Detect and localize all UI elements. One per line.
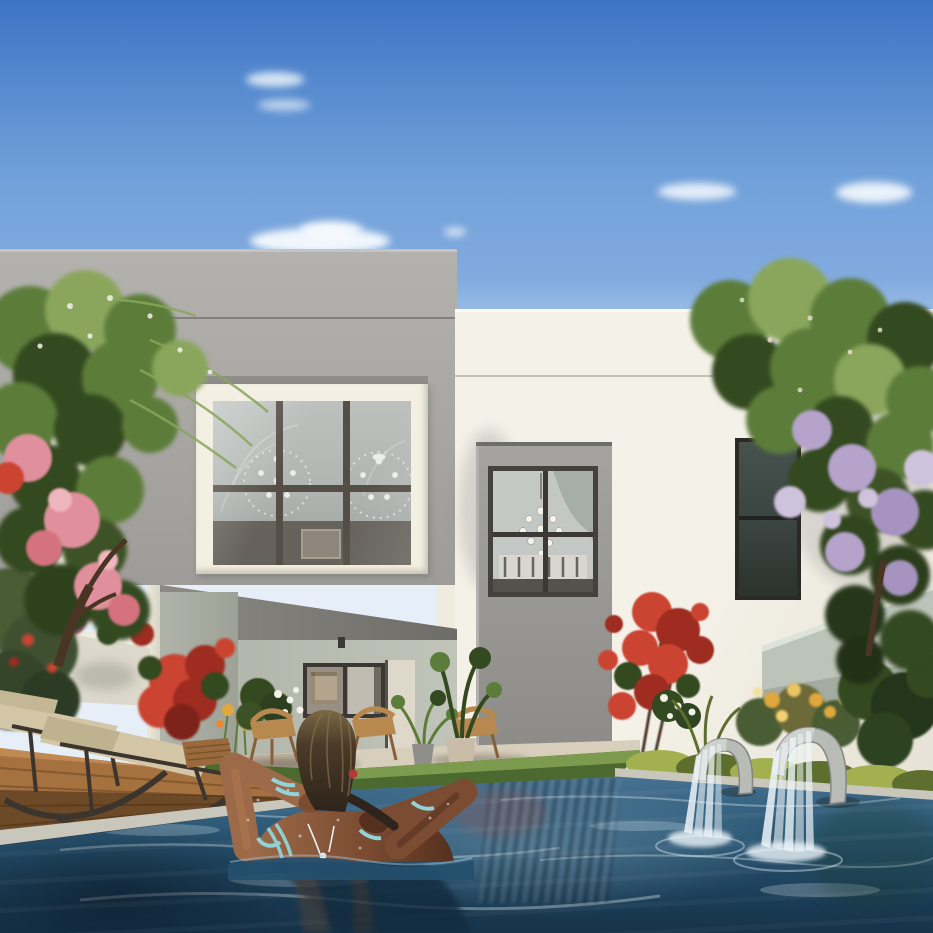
purple-flowering-tree — [690, 258, 933, 684]
tree-layer — [0, 0, 933, 933]
villa-pool-render — [0, 0, 933, 933]
pink-flowering-tree — [0, 270, 268, 666]
